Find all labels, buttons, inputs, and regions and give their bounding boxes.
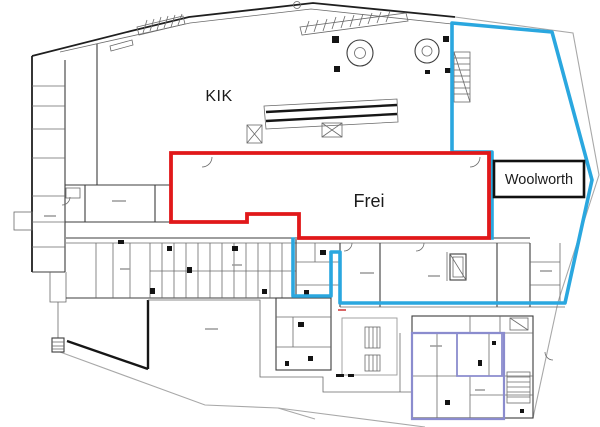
building-outline: [32, 3, 455, 369]
annex-inner-outline: [457, 333, 502, 376]
central-duct-band: [247, 99, 398, 143]
frei-region-outline: [171, 153, 489, 238]
bottom-right-block: [412, 316, 533, 418]
door-arcs: [62, 157, 553, 360]
lower-rooms: [148, 298, 412, 392]
kik-area-label: KIK: [205, 88, 232, 105]
frei-area-label: Frei: [354, 191, 385, 211]
woolworth-label: Woolworth: [505, 172, 573, 188]
floor-plan-canvas: KIK Frei Woolworth: [0, 0, 600, 427]
floor-plan-page: KIK Frei Woolworth: [0, 0, 600, 427]
roof-elements: [110, 2, 470, 103]
